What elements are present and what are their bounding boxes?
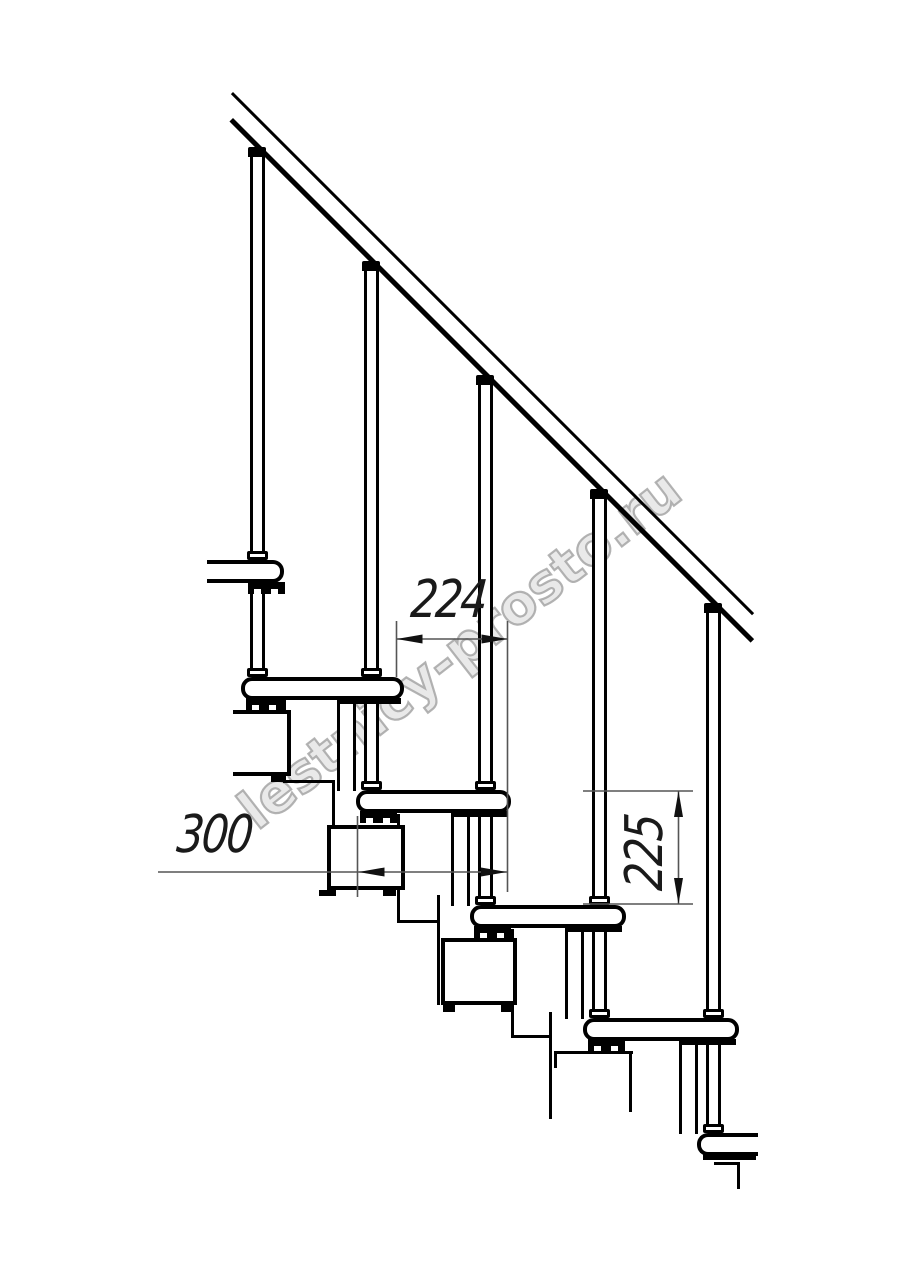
tread-clamp: [474, 926, 511, 938]
module-tube-2-3: [451, 812, 470, 906]
baluster-washer: [361, 781, 382, 790]
tread-clamp: [246, 698, 283, 710]
dimension-label-224: 224: [400, 574, 496, 626]
baluster-washer: [247, 551, 268, 560]
tread-clamp: [360, 811, 397, 823]
baluster-washer: [247, 668, 268, 677]
box-foot: [501, 1005, 514, 1012]
baluster-washer: [703, 1124, 724, 1133]
module-box-1: [233, 710, 291, 776]
dimension-label-225: 225: [619, 805, 671, 901]
module-box-3: [441, 938, 517, 1005]
baluster-washer: [589, 1009, 610, 1018]
tread-bracket: [679, 1039, 736, 1045]
box-foot: [443, 1005, 455, 1012]
tread-bracket: [451, 811, 508, 817]
baluster-washer: [703, 1009, 724, 1018]
spine-line: [437, 895, 440, 1005]
baluster-3: [478, 385, 493, 896]
module-box-4-partial: [554, 1051, 557, 1068]
baluster-2: [364, 271, 379, 781]
staircase-technical-drawing: lestnicy-prosto.ru: [0, 0, 914, 1280]
tread-5: [583, 1018, 739, 1041]
cut-line: [737, 1162, 740, 1189]
spine-line: [397, 920, 440, 923]
tread-clamp: [588, 1039, 625, 1051]
box-foot: [319, 890, 336, 896]
baluster-washer: [589, 896, 610, 905]
box-foot: [383, 890, 396, 896]
module-tube-3-4: [565, 927, 584, 1019]
baluster-washer: [361, 668, 382, 677]
baluster-5: [706, 613, 721, 1124]
module-tube-4-5: [679, 1040, 698, 1134]
tread-bracket: [703, 1154, 756, 1160]
module-box-4-partial: [629, 1051, 632, 1112]
tread-3: [356, 790, 511, 813]
module-tube-1-2: [337, 699, 356, 791]
box-foot: [271, 776, 283, 782]
baluster-washer: [475, 781, 496, 790]
tread-clamp: [248, 582, 285, 594]
baluster-washer: [475, 896, 496, 905]
tread-6: [697, 1133, 758, 1156]
tread-2: [241, 677, 404, 700]
baluster-4: [592, 499, 607, 1009]
module-box-4-partial: [554, 1051, 633, 1054]
tread-bracket: [337, 698, 401, 704]
dimension-label-300: 300: [166, 809, 262, 861]
spine-line: [549, 1012, 552, 1119]
module-box-2: [327, 825, 405, 890]
tread-1: [207, 560, 284, 583]
spine-line: [283, 780, 335, 783]
tread-4: [470, 905, 626, 928]
spine-line: [511, 1035, 552, 1038]
tread-bracket: [565, 926, 622, 932]
